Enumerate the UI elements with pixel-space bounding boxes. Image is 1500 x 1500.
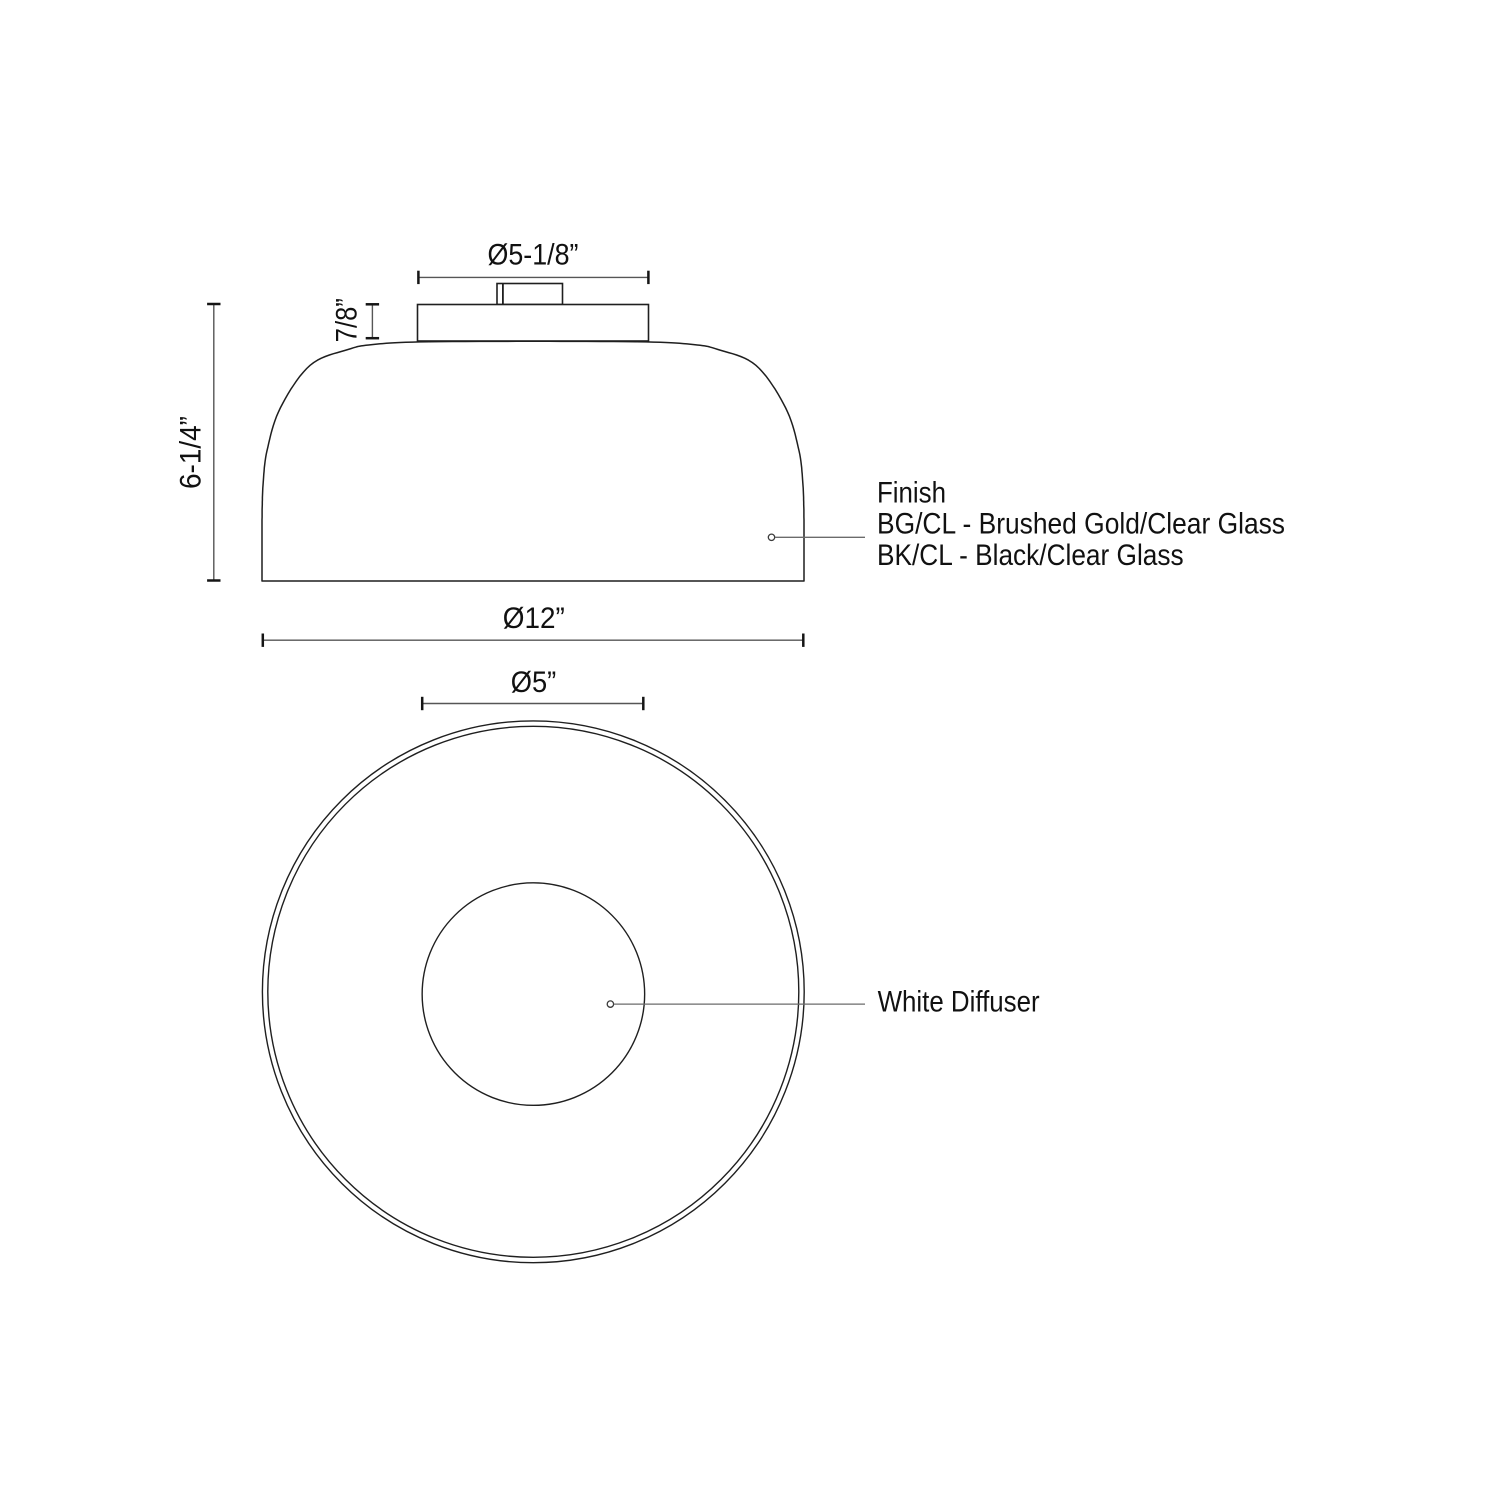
svg-text:6-1/4”: 6-1/4” (174, 416, 207, 489)
svg-text:BG/CL - Brushed Gold/Clear Gla: BG/CL - Brushed Gold/Clear Glass (877, 508, 1285, 541)
svg-text:Ø5-1/8”: Ø5-1/8” (488, 238, 579, 271)
svg-text:7/8”: 7/8” (331, 298, 364, 342)
svg-text:BK/CL - Black/Clear Glass: BK/CL - Black/Clear Glass (877, 539, 1184, 572)
svg-text:Ø12”: Ø12” (503, 602, 565, 635)
svg-text:Ø5”: Ø5” (511, 666, 557, 699)
svg-text:White Diffuser: White Diffuser (878, 986, 1040, 1019)
svg-text:Finish: Finish (877, 476, 946, 509)
